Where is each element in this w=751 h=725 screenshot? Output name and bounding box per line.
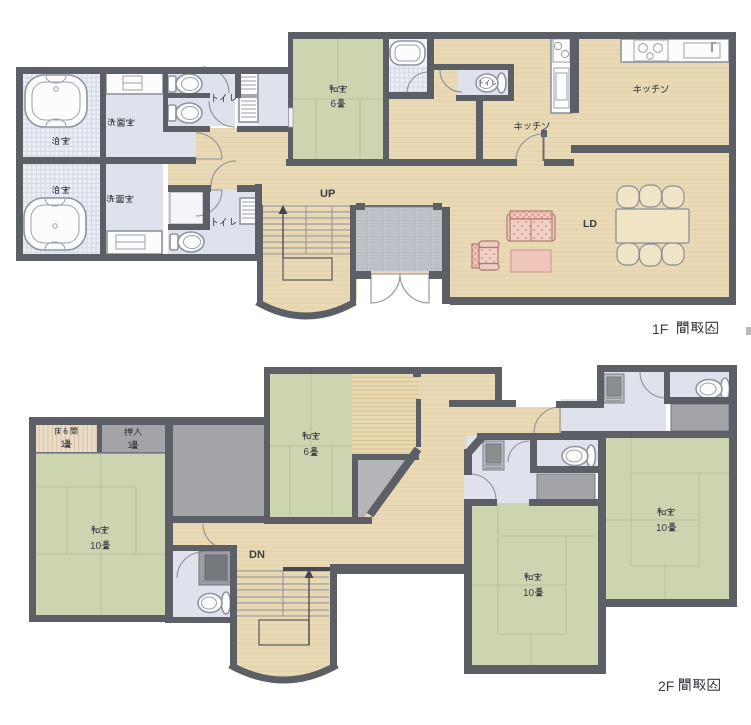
svg-text:UP: UP (320, 188, 335, 200)
svg-text:LD: LD (583, 218, 597, 230)
svg-text:DN: DN (249, 549, 265, 561)
svg-text:10: 10 (90, 541, 102, 552)
svg-text:6: 6 (304, 447, 310, 458)
svg-text:6: 6 (331, 99, 337, 110)
svg-text:10: 10 (656, 523, 668, 534)
svg-text:2F: 2F (658, 678, 674, 694)
svg-text:1F: 1F (652, 321, 668, 337)
svg-text:10: 10 (523, 588, 535, 599)
